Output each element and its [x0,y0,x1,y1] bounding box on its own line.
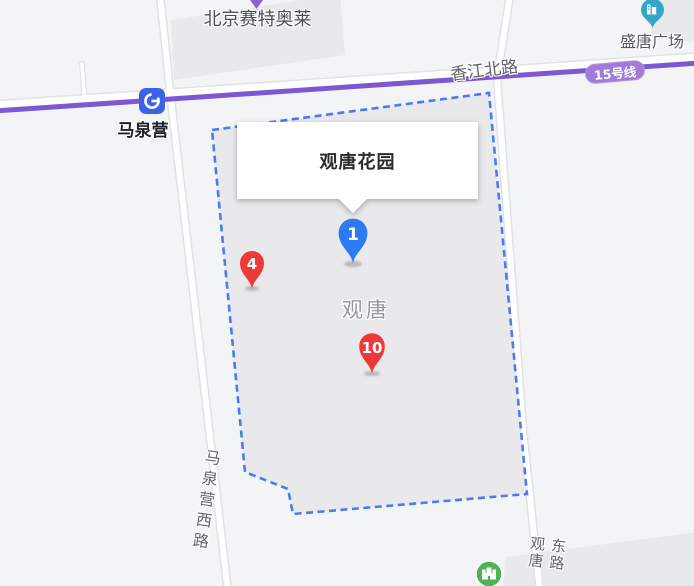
pin-number: 10 [356,337,388,359]
castle-poi-icon[interactable] [475,560,503,586]
info-window[interactable]: 观唐花园 [237,122,478,199]
poi-label-outlet: 北京赛特奥莱 [175,5,340,31]
area-label: 观唐 [342,294,390,324]
station-label: 马泉营 [112,116,174,141]
map-pin-4[interactable]: 4 [237,248,267,290]
subway-station-icon[interactable] [139,88,165,114]
map-pin-10[interactable]: 10 [356,330,388,375]
pin-number: 1 [335,224,371,246]
office-building-poi-icon[interactable] [639,0,666,29]
info-window-title: 观唐花园 [320,148,396,174]
map-base-layer [0,0,694,586]
map-canvas[interactable]: 北京赛特奥莱 马泉营 盛唐广场 香江北路 15号线 观唐花园 1 [0,0,694,586]
pin-number: 4 [237,253,267,275]
poi-label-plaza: 盛唐广场 [610,28,694,52]
road-label-east: 观唐东路 [523,535,570,586]
map-pin-1[interactable]: 1 [335,215,371,265]
